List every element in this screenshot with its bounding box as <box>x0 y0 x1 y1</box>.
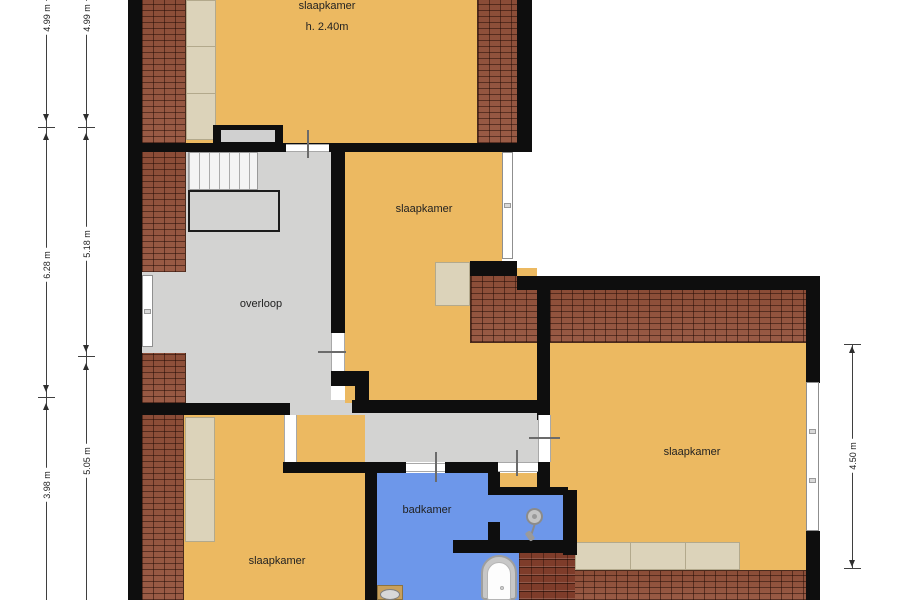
window-tick <box>809 478 816 483</box>
door-bottomleft-bedroom <box>284 415 297 462</box>
dimension-arrow-down <box>83 345 89 352</box>
roof-slope-hatch <box>550 290 806 343</box>
wall-left-outer <box>128 0 142 600</box>
dimension-label: 4.99 m <box>81 1 93 35</box>
staircase <box>188 152 258 190</box>
door-leaf-right-bedroom <box>529 437 560 439</box>
closet-divider <box>685 543 686 569</box>
wall-right-wing-left-lower <box>537 462 550 490</box>
dimension-label: 4.99 m <box>41 1 53 35</box>
closet-divider <box>187 93 215 94</box>
room-label-bottomleft-bedroom: slaapkamer <box>249 555 306 567</box>
room-label-bathroom: badkamer <box>403 504 452 516</box>
wall-right-outer-upper <box>806 290 820 383</box>
shower-head-dot <box>532 514 537 519</box>
window-right-bedroom-east <box>806 382 819 531</box>
roof-slope-hatch <box>142 152 186 272</box>
door-small-room <box>498 462 538 472</box>
room-label-top-bedroom: slaapkamer <box>299 0 356 12</box>
roof-slope-hatch <box>142 415 184 600</box>
wall-corridor-top <box>352 400 550 413</box>
door-leaf-middle-bedroom <box>318 351 346 353</box>
wall-middle-bedroom-left <box>331 152 345 333</box>
dimension-label: 5.18 m <box>81 227 93 261</box>
window-tick <box>144 309 151 314</box>
closet-top-bedroom <box>186 0 216 140</box>
roof-slope-hatch <box>550 570 806 600</box>
dimension-tick <box>78 127 95 128</box>
stairwell-void <box>188 190 280 232</box>
door-leaf-top-bedroom <box>307 130 309 158</box>
closet-divider <box>630 543 631 569</box>
door-leaf-small-room <box>516 450 518 476</box>
room-label-right-bedroom: slaapkamer <box>664 446 721 458</box>
room-label-middle-bedroom: slaapkamer <box>396 203 453 215</box>
closet-divider <box>186 479 214 480</box>
dimension-arrow-up <box>83 363 89 370</box>
closet-middle-bedroom <box>435 262 470 306</box>
door-leaf-bathroom <box>435 452 437 482</box>
sink-basin-icon <box>380 589 400 600</box>
bathtub-drain <box>500 586 504 590</box>
dimension-arrow-up <box>43 133 49 140</box>
window-tick <box>809 429 816 434</box>
dimension-label: 4.50 m <box>847 439 859 473</box>
wall-bath-extension-top <box>488 487 568 495</box>
room-label-landing: overloop <box>240 298 282 310</box>
wall-middle-window-sill <box>470 261 517 276</box>
door-bathroom <box>406 463 445 472</box>
wall-right-outer-lower <box>806 531 820 600</box>
wall-right-wing-left <box>537 283 550 420</box>
closet-divider <box>187 46 215 47</box>
wall-topright-outer <box>517 0 532 152</box>
dimension-tick <box>38 127 55 128</box>
wall-right-wing-top <box>517 276 820 290</box>
wall-middle-bedroom-jog-h <box>331 371 369 386</box>
bathtub-inner <box>487 562 511 600</box>
dimension-arrow-up <box>849 346 855 353</box>
dimension-arrow-down <box>43 385 49 392</box>
window-tick <box>504 203 511 208</box>
dimension-arrow-up <box>43 403 49 410</box>
roof-tile-area <box>519 553 575 600</box>
dimension-arrow-down <box>83 114 89 121</box>
wall-bottomleft-bedroom-top <box>128 403 290 415</box>
dimension-tick <box>844 344 861 345</box>
roof-slope-hatch <box>142 353 186 403</box>
wall-top-divider <box>128 143 532 152</box>
dimension-tick <box>844 568 861 569</box>
wall-bathroom-left <box>365 462 377 600</box>
dimension-label: 3.98 m <box>41 468 53 502</box>
floor-plan: slaapkamer h. 2.40m slaapkamer overloop … <box>0 0 900 600</box>
dimension-tick <box>38 397 55 398</box>
dimension-label: 5.05 m <box>81 444 93 478</box>
dimension-arrow-down <box>43 114 49 121</box>
roof-slope-hatch <box>477 0 517 143</box>
wall-corridor-bottom-west <box>283 462 406 473</box>
wall-bath-inner <box>453 540 573 553</box>
dimension-line <box>86 0 87 600</box>
dimension-arrow-up <box>83 133 89 140</box>
wall-bath-stub <box>488 522 500 542</box>
roof-slope-hatch <box>142 0 186 143</box>
closet-right-bedroom <box>575 542 740 570</box>
small-room-floor <box>498 473 540 487</box>
dimension-line <box>46 0 47 600</box>
room-height-note: h. 2.40m <box>306 21 349 33</box>
dimension-tick <box>78 356 95 357</box>
chimney-inner <box>221 130 275 142</box>
dimension-label: 6.28 m <box>41 248 53 282</box>
dimension-arrow-down <box>849 560 855 567</box>
